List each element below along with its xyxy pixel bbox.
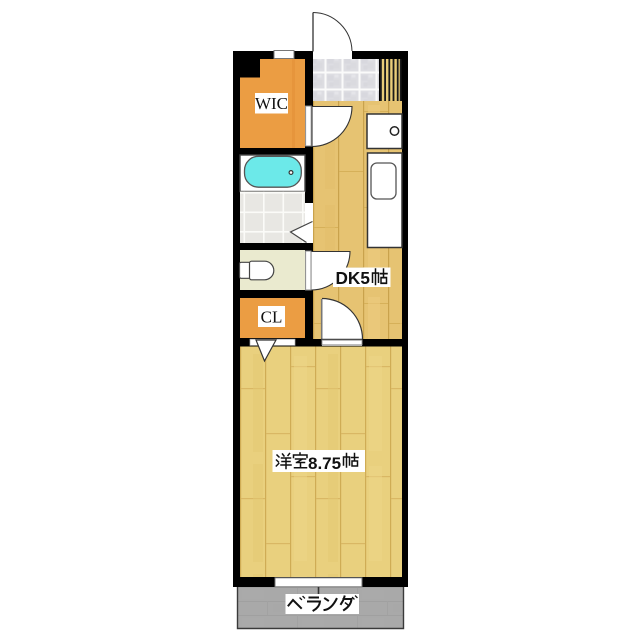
svg-text:CL: CL	[261, 308, 283, 327]
svg-text:DK5: DK5	[336, 268, 371, 288]
svg-text:WIC: WIC	[255, 94, 288, 113]
svg-text:8.75: 8.75	[308, 454, 341, 473]
